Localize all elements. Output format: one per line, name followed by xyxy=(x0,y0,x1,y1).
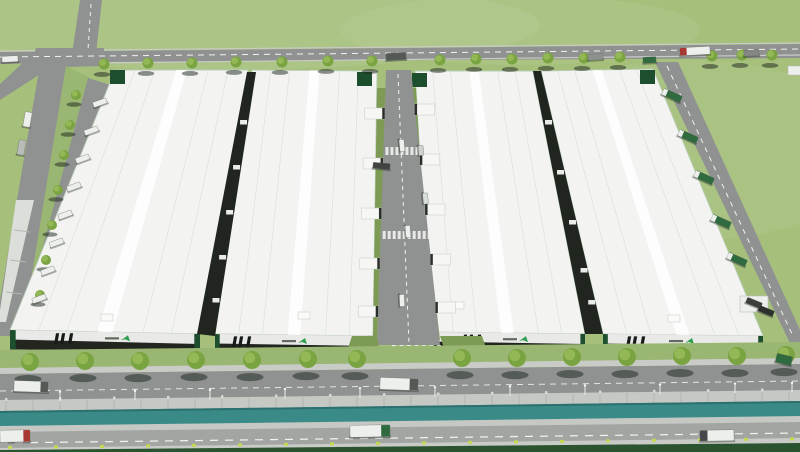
dock-door xyxy=(435,302,438,313)
tree-shadow xyxy=(732,63,749,68)
industrial-park-scene: Aerial 3D rendering of an industrial log… xyxy=(0,0,800,452)
tree-highlight xyxy=(42,256,48,262)
tree-highlight xyxy=(367,56,374,63)
curb-marker xyxy=(284,443,288,446)
light-pole-head xyxy=(659,383,661,385)
truck xyxy=(0,430,31,444)
alley-dock xyxy=(240,120,247,125)
wall-post xyxy=(653,390,655,393)
tree-shadow xyxy=(342,372,369,380)
tree-highlight xyxy=(188,352,199,363)
truck-body xyxy=(744,50,759,57)
dock-canopy xyxy=(365,108,385,119)
light-pole-head xyxy=(209,389,211,391)
tree-highlight xyxy=(729,348,740,359)
tree-highlight xyxy=(99,59,106,66)
tree-highlight xyxy=(132,353,143,364)
tree-shadow xyxy=(318,69,335,74)
tree-shadow xyxy=(610,65,627,70)
tree-shadow xyxy=(362,69,379,74)
truck-cab xyxy=(409,379,418,391)
truck xyxy=(1,56,19,64)
brand-text-mark xyxy=(105,337,119,339)
crosswalk-stripe xyxy=(393,231,396,239)
tree-highlight xyxy=(435,55,442,62)
roof-corner-office xyxy=(110,70,125,84)
curb-marker xyxy=(100,445,104,448)
dock-canopy xyxy=(420,154,440,165)
crosswalk-stripe xyxy=(390,147,393,155)
dock-canopy xyxy=(425,204,445,215)
tree-highlight xyxy=(674,348,685,359)
wall-post xyxy=(221,395,223,398)
truck-body xyxy=(423,193,429,204)
tree-shadow xyxy=(94,72,111,77)
tree-shadow xyxy=(466,67,483,72)
light-pole-head xyxy=(791,382,793,384)
tree-shadow xyxy=(502,371,529,379)
truck xyxy=(743,50,760,58)
crosswalk-stripe xyxy=(428,231,431,239)
tree-shadow xyxy=(612,370,639,378)
crosswalk-stripe xyxy=(383,231,386,239)
tree-shadow xyxy=(667,369,694,377)
tree-shadow xyxy=(293,372,320,380)
truck xyxy=(13,380,49,394)
wall-post xyxy=(491,392,493,395)
tree-highlight xyxy=(66,121,72,127)
alley-dock xyxy=(581,268,588,273)
light-pole-head xyxy=(734,382,736,384)
truck-body xyxy=(386,52,406,60)
wall-post xyxy=(5,398,7,401)
truck-body xyxy=(588,54,603,61)
curb-marker xyxy=(514,440,518,443)
alley-dock xyxy=(226,210,233,215)
wall-post xyxy=(383,393,385,396)
tree-highlight xyxy=(72,91,78,97)
tree-shadow xyxy=(557,370,584,378)
truck-body xyxy=(643,57,656,64)
tree-highlight xyxy=(564,349,575,360)
crosswalk-stripe xyxy=(410,147,413,155)
dock-door xyxy=(415,104,418,115)
tree-shadow xyxy=(125,374,152,382)
tree-shadow xyxy=(67,102,82,107)
tree-highlight xyxy=(244,352,255,363)
truck-body xyxy=(399,139,405,151)
curb-marker xyxy=(606,439,610,442)
wall-post xyxy=(599,391,601,394)
light-pole-head xyxy=(284,388,286,390)
tree-shadow xyxy=(226,70,243,75)
truck xyxy=(403,224,411,239)
tree-shadow xyxy=(61,132,76,137)
crosswalk-stripe xyxy=(418,231,421,239)
curb-marker xyxy=(468,441,472,444)
curb-marker xyxy=(744,438,748,441)
tree-shadow xyxy=(43,232,58,237)
dock-door xyxy=(376,306,379,317)
crosswalk-stripe xyxy=(398,231,401,239)
light-pole-head xyxy=(584,384,586,386)
curb-marker xyxy=(54,445,58,448)
curb-marker xyxy=(330,442,334,445)
tree-shadow xyxy=(272,70,289,75)
dock-canopy xyxy=(358,306,378,317)
dock-door xyxy=(382,108,385,119)
tree-shadow xyxy=(702,64,719,69)
truck xyxy=(398,293,405,307)
alley-dock xyxy=(212,298,219,303)
tree-shadow xyxy=(138,71,155,76)
tree-shadow xyxy=(237,373,264,381)
dock-canopy xyxy=(360,258,380,269)
tree-shadow xyxy=(722,369,749,377)
tree-highlight xyxy=(231,57,238,64)
curb-marker xyxy=(790,437,794,440)
dock-canopy xyxy=(361,208,381,219)
wall-post xyxy=(761,388,763,391)
wall-post xyxy=(545,391,547,394)
roof-vent xyxy=(298,312,310,319)
tree-highlight xyxy=(300,351,311,362)
brand-text-mark xyxy=(669,340,683,342)
curb-marker xyxy=(560,440,564,443)
tree-highlight xyxy=(143,58,150,65)
crosswalk-stripe xyxy=(423,231,426,239)
crosswalk-stripe xyxy=(405,147,408,155)
crosswalk-stripe xyxy=(388,231,391,239)
tree-highlight xyxy=(187,58,194,65)
roof-vent xyxy=(101,314,113,321)
truck xyxy=(679,46,711,57)
truck-body xyxy=(405,225,411,237)
brand-text-mark xyxy=(282,340,296,342)
tree-shadow xyxy=(538,66,555,71)
roadside-pad xyxy=(788,66,800,75)
tree-shadow xyxy=(771,368,798,376)
tree-highlight xyxy=(60,151,66,157)
truck-cab xyxy=(680,48,687,56)
tree-shadow xyxy=(55,162,70,167)
truck xyxy=(379,377,419,392)
truck-cab xyxy=(700,430,708,441)
wall-post xyxy=(329,394,331,397)
curb-marker xyxy=(422,441,426,444)
tree-highlight xyxy=(277,57,284,64)
roof-corner-office xyxy=(640,70,655,84)
alley-dock xyxy=(545,120,552,125)
tree-highlight xyxy=(349,351,360,362)
truck xyxy=(642,57,657,65)
tree-shadow xyxy=(182,71,199,76)
tree-shadow xyxy=(70,374,97,382)
wall-post xyxy=(167,396,169,399)
dock-door xyxy=(425,204,428,215)
tree-highlight xyxy=(471,54,478,61)
tree-highlight xyxy=(77,353,88,364)
truck-cab xyxy=(23,430,30,442)
facade-corner-post xyxy=(10,330,16,349)
tree-highlight xyxy=(509,350,520,361)
tree-highlight xyxy=(454,350,465,361)
roof-corner-office xyxy=(357,72,372,86)
tree-highlight xyxy=(54,186,60,192)
truck xyxy=(397,138,405,153)
alley-dock xyxy=(219,255,226,260)
light-pole-head xyxy=(434,386,436,388)
tree-highlight xyxy=(323,56,330,63)
alley-dock xyxy=(233,165,240,170)
crosswalk-stripe xyxy=(395,147,398,155)
tree-shadow xyxy=(502,67,519,72)
curb-marker xyxy=(8,446,12,449)
light-pole-head xyxy=(359,387,361,389)
roof-vent xyxy=(668,315,680,322)
light-pole-head xyxy=(509,385,511,387)
aerial-render: Aerial 3D rendering of an industrial log… xyxy=(0,0,800,452)
truck xyxy=(349,425,391,439)
tree-highlight xyxy=(619,349,630,360)
light-pole-head xyxy=(59,391,61,393)
tree-highlight xyxy=(507,54,514,61)
tree-shadow xyxy=(430,68,447,73)
alley-dock xyxy=(557,170,564,175)
wall-post xyxy=(275,395,277,398)
truck-cab xyxy=(381,425,390,437)
tree-shadow xyxy=(762,63,779,68)
tree-shadow xyxy=(574,66,591,71)
tree-highlight xyxy=(22,354,33,365)
dock-door xyxy=(377,258,380,269)
tree-highlight xyxy=(579,53,586,60)
truck-body xyxy=(399,294,404,306)
tree-shadow xyxy=(447,371,474,379)
alley-dock xyxy=(588,300,595,305)
wall-post xyxy=(707,389,709,392)
truck-body xyxy=(418,145,424,155)
alley-dock xyxy=(569,220,576,225)
tree-shadow xyxy=(181,373,208,381)
tree-highlight xyxy=(767,50,774,57)
tree-highlight xyxy=(543,53,550,60)
truck xyxy=(699,430,735,443)
truck-cab xyxy=(40,382,48,393)
wall-post xyxy=(113,397,115,400)
truck xyxy=(421,192,429,206)
crosswalk-stripe xyxy=(413,231,416,239)
curb-marker xyxy=(146,444,150,447)
dock-door xyxy=(430,254,433,265)
tree-highlight xyxy=(737,50,744,57)
light-pole-head xyxy=(134,390,136,392)
crosswalk-stripe xyxy=(385,147,388,155)
dock-door xyxy=(379,208,382,219)
curb-marker xyxy=(192,444,196,447)
dock-canopy xyxy=(435,302,455,313)
brand-text-mark xyxy=(503,338,517,340)
truck xyxy=(416,144,424,157)
truck xyxy=(587,54,604,62)
roof-corner-office xyxy=(412,73,427,87)
truck-body xyxy=(373,162,390,169)
truck-body xyxy=(2,56,18,63)
tree-highlight xyxy=(48,221,54,227)
curb-marker xyxy=(238,443,242,446)
wall-post xyxy=(437,393,439,396)
curb-marker xyxy=(652,439,656,442)
tree-shadow xyxy=(49,197,64,202)
curb-marker xyxy=(376,442,380,445)
dock-canopy xyxy=(430,254,450,265)
tree-highlight xyxy=(615,52,622,59)
truck xyxy=(385,52,407,62)
dock-canopy xyxy=(415,104,435,115)
